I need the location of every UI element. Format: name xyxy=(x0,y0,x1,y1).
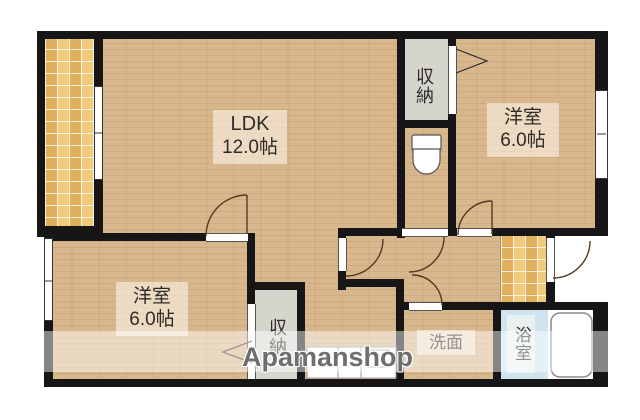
bedroom-right-size: 6.0帖 xyxy=(500,130,545,151)
door-arc xyxy=(206,195,590,305)
closet-door-triangle-icon xyxy=(223,49,487,363)
ldk-size: 12.0帖 xyxy=(222,137,278,158)
bedroom-right-name: 洋室 xyxy=(504,107,542,128)
ldk-name: LDK xyxy=(231,113,270,135)
toilet-icon xyxy=(412,135,441,174)
bedroom-left-name: 洋室 xyxy=(133,286,171,307)
room-label-closet-top: 収納 xyxy=(411,56,437,116)
floor-plan-canvas: LDK 12.0帖 洋室 6.0帖 洋室 6.0帖 収納 収納 洗面 浴室 Ap… xyxy=(0,0,640,420)
room-label-bedroom-left: 洋室 6.0帖 xyxy=(116,282,188,336)
bedroom-left-size: 6.0帖 xyxy=(129,309,174,330)
room-label-ldk: LDK 12.0帖 xyxy=(213,110,287,164)
room-label-bedroom-right: 洋室 6.0帖 xyxy=(487,103,559,157)
watermark-text: Apamanshop xyxy=(242,342,413,373)
